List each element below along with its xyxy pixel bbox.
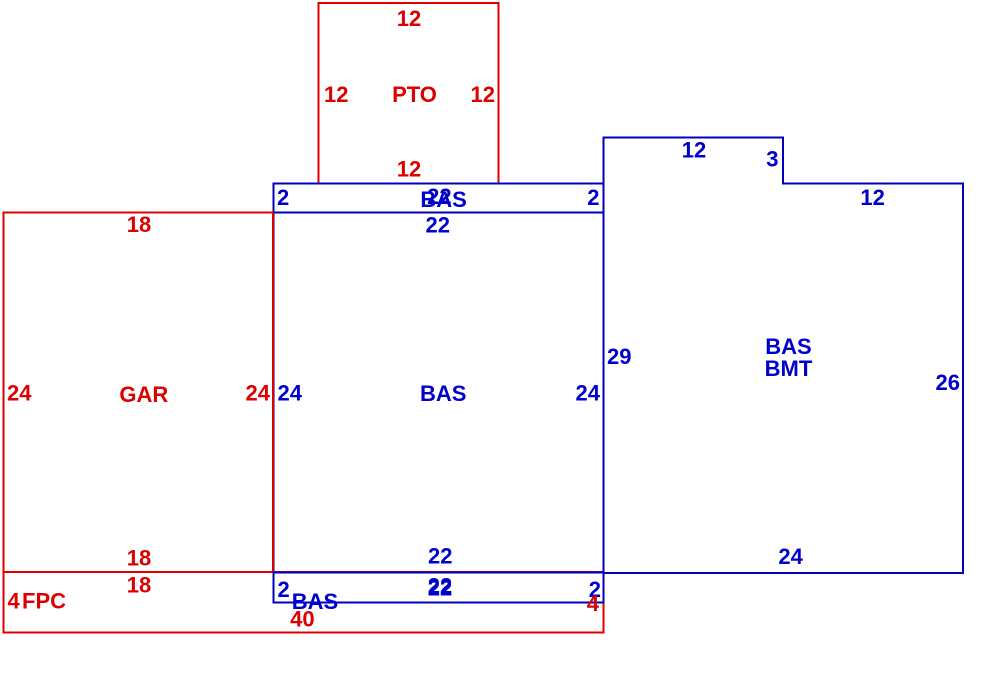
svg-text:12: 12: [324, 82, 348, 107]
svg-text:2: 2: [278, 577, 290, 602]
svg-text:24: 24: [246, 381, 271, 406]
svg-text:24: 24: [7, 381, 32, 406]
svg-text:40: 40: [290, 607, 314, 632]
svg-text:2: 2: [277, 185, 289, 210]
svg-text:24: 24: [278, 381, 303, 406]
svg-text:PTO: PTO: [392, 82, 437, 107]
svg-text:24: 24: [576, 381, 601, 406]
svg-text:22: 22: [428, 576, 452, 601]
svg-text:12: 12: [397, 6, 421, 31]
svg-text:12: 12: [471, 82, 495, 107]
svg-text:18: 18: [127, 546, 151, 571]
svg-text:22: 22: [427, 184, 451, 209]
svg-text:2: 2: [587, 185, 599, 210]
svg-text:3: 3: [766, 147, 778, 172]
svg-text:22: 22: [425, 213, 449, 238]
svg-text:4: 4: [587, 591, 600, 616]
svg-text:29: 29: [607, 344, 631, 369]
svg-text:4: 4: [8, 589, 21, 614]
svg-text:BAS: BAS: [420, 381, 466, 406]
svg-text:24: 24: [778, 544, 803, 569]
svg-text:26: 26: [936, 370, 960, 395]
svg-text:18: 18: [127, 212, 151, 237]
svg-text:GAR: GAR: [119, 382, 168, 407]
svg-text:12: 12: [682, 138, 706, 163]
svg-text:FPC: FPC: [22, 589, 66, 614]
svg-text:22: 22: [428, 544, 452, 569]
svg-text:BMT: BMT: [765, 356, 813, 381]
svg-text:12: 12: [860, 185, 884, 210]
svg-text:12: 12: [397, 157, 421, 182]
svg-text:18: 18: [127, 573, 151, 598]
